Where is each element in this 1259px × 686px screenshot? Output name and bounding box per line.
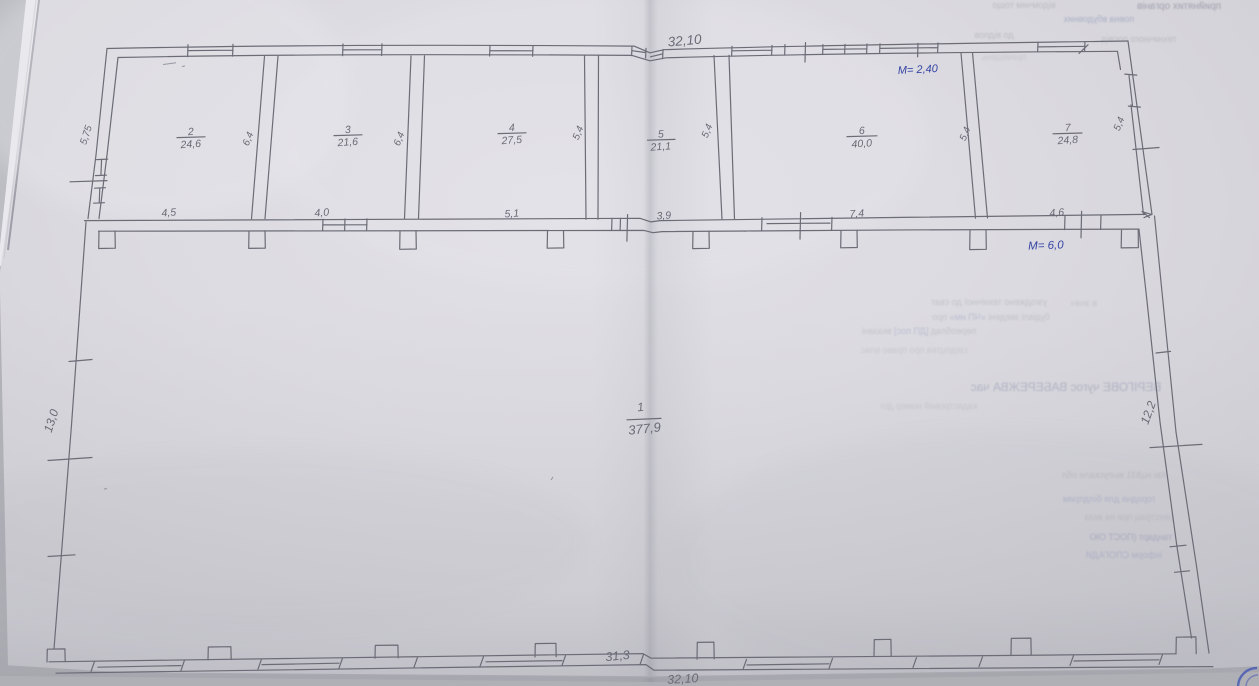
svg-text:31,3: 31,3	[605, 648, 631, 664]
svg-text:в знач: в знач	[1071, 298, 1097, 308]
svg-text:М= 2,40: М= 2,40	[898, 63, 940, 77]
svg-text:7,4: 7,4	[849, 208, 865, 221]
svg-text:3,9: 3,9	[656, 210, 672, 223]
svg-text:27,5: 27,5	[500, 134, 522, 147]
svg-text:4,5: 4,5	[161, 207, 177, 220]
svg-text:6: 6	[858, 125, 865, 137]
svg-text:ВЕРІГОВЕ чугос ВАБЕРЕЖВА ча: ВЕРІГОВЕ чугос ВАБЕРЕЖВА час	[971, 380, 1162, 394]
svg-text:відомчим тощо: відомчим тощо	[993, 0, 1056, 10]
svg-text:4: 4	[508, 122, 515, 134]
svg-text:4,6: 4,6	[1049, 207, 1065, 220]
svg-text:5,1: 5,1	[504, 208, 519, 221]
svg-text:повна вбудовних: повна вбудовних	[1063, 14, 1134, 24]
svg-text:реєстрац при на вказ: реєстрац при на вказ	[1085, 512, 1174, 522]
svg-text:32,10: 32,10	[667, 32, 702, 50]
svg-text:узгоджено технічної до сват: узгоджено технічної до сват	[931, 297, 1047, 307]
svg-text:21,1: 21,1	[649, 140, 671, 153]
svg-text:тандарт (ПОСТ ОЮ: тандарт (ПОСТ ОЮ	[1090, 532, 1172, 542]
svg-text:21,6: 21,6	[336, 136, 358, 149]
svg-text:5: 5	[657, 128, 664, 140]
svg-text:до відпов: до відпов	[974, 30, 1014, 40]
svg-text:4,0: 4,0	[314, 207, 330, 220]
svg-text:прийнятих органів: прийнятих органів	[1137, 1, 1221, 12]
svg-text:свідоцтва про право влас: свідоцтва про право влас	[860, 345, 967, 355]
svg-text:32,10: 32,10	[667, 671, 699, 686]
svg-text:24,6: 24,6	[179, 138, 201, 151]
svg-text:переоблад [ДП пос] вказані: переоблад [ДП пос] вказані	[862, 326, 977, 336]
svg-text:40,0: 40,0	[851, 137, 872, 150]
svg-text:М= 6,0: М= 6,0	[1028, 239, 1064, 252]
svg-text:техничного посвід: техничного посвід	[1101, 34, 1177, 44]
svg-text:будівлі зведені «ЧП им» про: будівлі зведені «ЧП им» про	[932, 312, 1050, 322]
svg-text:кадастровий номер діл: кадастровий номер діл	[881, 401, 978, 411]
svg-text:приміщень: приміщень	[981, 52, 1026, 62]
svg-text:2: 2	[186, 126, 194, 138]
svg-text:24,8: 24,8	[1056, 134, 1078, 147]
svg-text:3: 3	[344, 124, 351, 136]
svg-text:Кві нц831 выпускали обл: Кві нц831 выпускали обл	[1062, 470, 1166, 480]
svg-text:інформ СПОГАДИ: інформ СПОГАДИ	[1086, 550, 1162, 560]
svg-text:городня для білдприм: городня для білдприм	[1063, 494, 1155, 504]
